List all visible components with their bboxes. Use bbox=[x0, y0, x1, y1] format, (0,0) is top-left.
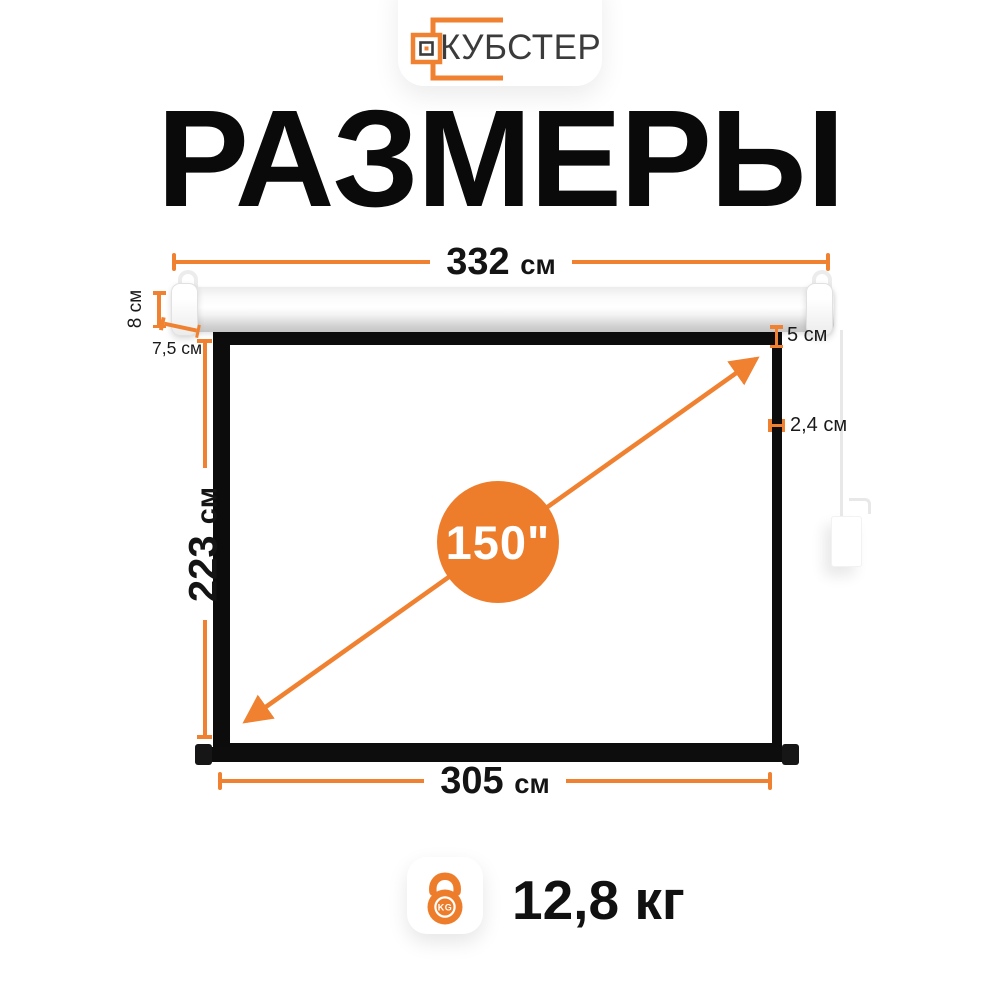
kg-badge: KG bbox=[438, 902, 453, 912]
dim-top-border-beam bbox=[770, 325, 783, 348]
dim-side-border-beam bbox=[768, 419, 785, 432]
weight-icon-card: KG bbox=[407, 857, 483, 934]
dim-tick bbox=[826, 253, 830, 271]
power-cable-elbow bbox=[849, 498, 871, 514]
diagonal-size-label: 150" bbox=[446, 515, 551, 570]
infographic-canvas: КУБСТЕР РАЗМЕРЫ 150" 332 см 8 см bbox=[0, 0, 1000, 1000]
dim-left-offset-label: 7,5 см bbox=[152, 338, 202, 359]
dim-line bbox=[222, 779, 424, 783]
dim-screen-height-line bbox=[203, 343, 207, 468]
kettlebell-icon: KG bbox=[421, 866, 469, 926]
dim-case-height-label: 8 см bbox=[125, 279, 147, 339]
dim-line bbox=[572, 260, 826, 264]
weight-bar-left-cap bbox=[195, 744, 212, 765]
dim-screen-width-label: 305 см bbox=[424, 760, 565, 803]
page-title: РАЗМЕРЫ bbox=[0, 90, 1000, 228]
dim-total-width: 332 см bbox=[172, 252, 830, 272]
diagonal-size-badge: 150" bbox=[437, 481, 559, 603]
remote-control-box bbox=[831, 516, 862, 567]
dim-screen-height-label: 223 см bbox=[182, 460, 227, 630]
dim-tick bbox=[768, 772, 772, 790]
dim-screen-width: 305 см bbox=[218, 771, 772, 791]
dim-screen-height-tick-bottom bbox=[197, 735, 212, 739]
dim-line bbox=[176, 260, 430, 264]
dim-line bbox=[566, 779, 768, 783]
brand-name: КУБСТЕР bbox=[440, 27, 601, 69]
weight-bar-right-cap bbox=[782, 744, 799, 765]
dim-side-border-label: 2,4 см bbox=[790, 414, 847, 437]
dim-total-width-label: 332 см bbox=[430, 241, 571, 284]
weight-value: 12,8 кг bbox=[512, 868, 685, 932]
dim-screen-height-line bbox=[203, 620, 207, 735]
roller-case bbox=[174, 287, 834, 332]
dim-top-border-label: 5 см bbox=[787, 324, 827, 347]
